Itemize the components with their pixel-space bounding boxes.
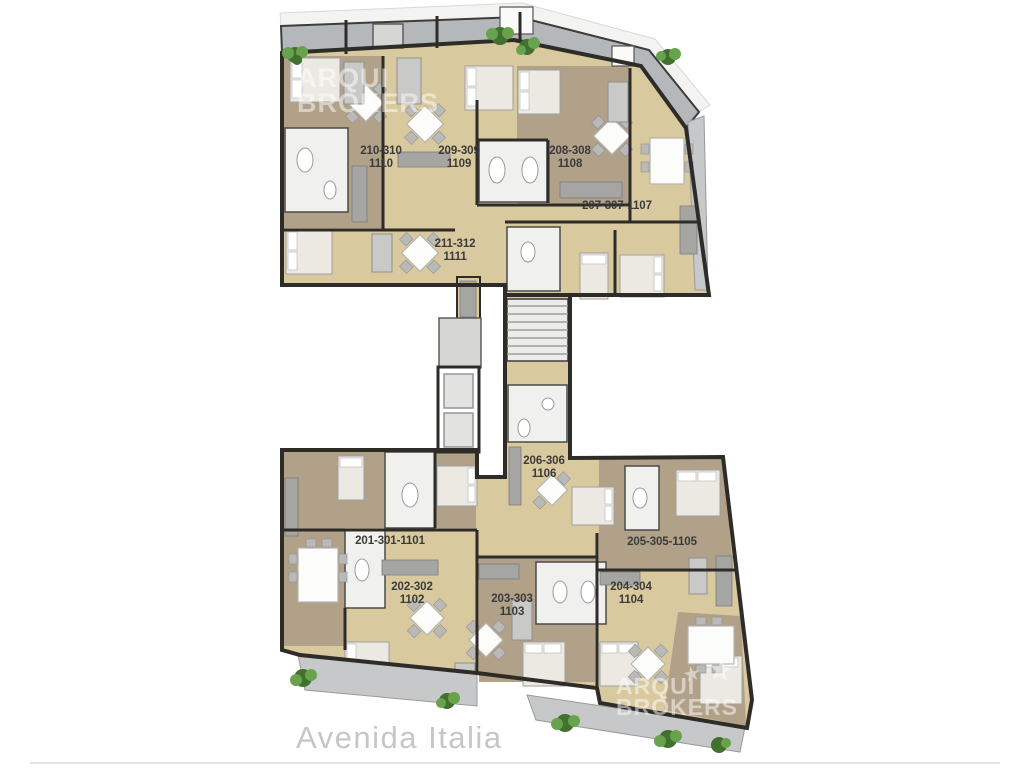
unit-label-unit-208-308: 208-3081108 [549, 145, 591, 170]
unit-label-unit-211-312: 211-3121111 [435, 238, 476, 263]
elevator-car-1 [444, 374, 473, 408]
unit-label-unit-207-307: 207-307-1107 [582, 200, 652, 213]
unit-label-unit-210-310: 210-3101110 [360, 145, 402, 170]
bed [338, 456, 364, 500]
utility-shaft [439, 318, 481, 368]
unit-label-unit-205-305: 205-305-1105 [627, 536, 697, 549]
bed [580, 253, 608, 299]
dining-table [289, 539, 347, 602]
watermark-bottom-right: ARQUI BROKERS [616, 676, 738, 718]
watermark-line-2: BROKERS [297, 91, 439, 116]
balcony-box-1 [373, 24, 403, 48]
bathroom-210 [285, 128, 348, 212]
sofa [689, 558, 707, 594]
unit-label-unit-201-301: 201-301-1101 [355, 535, 425, 548]
bed [676, 470, 720, 516]
bed [620, 255, 664, 297]
floor-plan-page: ★ ★ 210-3101110209-3091109208-3081108207… [0, 0, 1024, 768]
unit-label-unit-203-303: 203-3031103 [491, 593, 533, 618]
unit-label-unit-202-302: 202-3021102 [391, 581, 433, 606]
watermark-line-2: BROKERS [616, 697, 738, 718]
elevator-car-2 [444, 413, 473, 447]
bed [465, 66, 513, 110]
bathroom-206 [508, 385, 567, 442]
watermark-top-left: ARQUI BROKERS [297, 66, 439, 116]
floor-plan-graphic: ★ ★ [0, 0, 1024, 768]
bed [286, 230, 332, 274]
unit-label-unit-204-304: 204-3041104 [610, 581, 652, 606]
unit-label-unit-209-309: 209-3091109 [438, 145, 480, 170]
street-label: Avenida Italia [296, 720, 503, 756]
bed [518, 70, 560, 114]
bed [437, 466, 477, 506]
sofa [372, 234, 392, 272]
bed [572, 487, 614, 525]
unit-label-unit-206-306: 206-3061106 [523, 455, 565, 480]
sofa [608, 82, 628, 122]
